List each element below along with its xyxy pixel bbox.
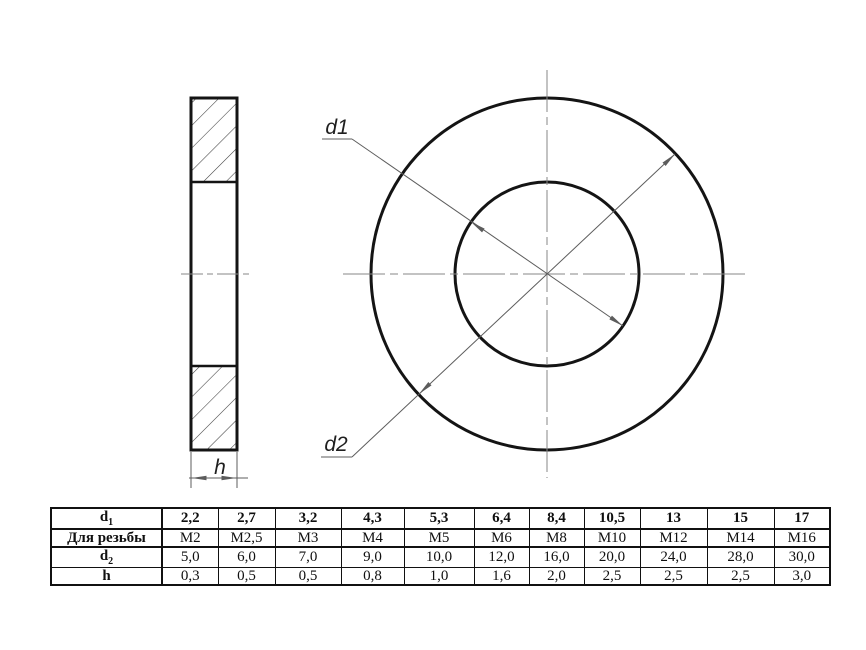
row-label: d2 <box>51 547 162 568</box>
table-cell: 16,0 <box>529 547 584 568</box>
table-cell: М14 <box>707 529 774 547</box>
table-cell: 6,0 <box>218 547 275 568</box>
table-row: h0,30,50,50,81,01,62,02,52,52,53,0 <box>51 568 830 585</box>
dimension-line-d2 <box>352 154 675 457</box>
table-cell: 0,8 <box>341 568 404 585</box>
table-cell: 1,6 <box>474 568 529 585</box>
table-cell: 0,3 <box>162 568 218 585</box>
table-cell: 9,0 <box>341 547 404 568</box>
table-cell: 2,5 <box>640 568 707 585</box>
table-cell: 20,0 <box>584 547 640 568</box>
table-cell: 3,2 <box>275 508 341 529</box>
label-d2: d2 <box>324 433 348 456</box>
dimension-d1: d1 <box>322 116 624 328</box>
label-d1: d1 <box>325 116 348 139</box>
table-cell: М3 <box>275 529 341 547</box>
table-cell: 1,0 <box>404 568 474 585</box>
arrowhead-left <box>192 476 207 481</box>
table-cell: 28,0 <box>707 547 774 568</box>
table-cell: 8,4 <box>529 508 584 529</box>
table-cell: 2,7 <box>218 508 275 529</box>
table-row: Для резьбыМ2М2,5М3М4М5М6М8М10М12М14М16 <box>51 529 830 547</box>
table-cell: М2 <box>162 529 218 547</box>
row-label: d1 <box>51 508 162 529</box>
table-cell: М16 <box>774 529 830 547</box>
table-cell: 3,0 <box>774 568 830 585</box>
table-cell: 7,0 <box>275 547 341 568</box>
washer-technical-drawing-page: h d1 d2 <box>0 0 866 650</box>
table-cell: 5,3 <box>404 508 474 529</box>
table-row: d25,06,07,09,010,012,016,020,024,028,030… <box>51 547 830 568</box>
table-cell: М8 <box>529 529 584 547</box>
row-label: Для резьбы <box>51 529 162 547</box>
table-cell: М10 <box>584 529 640 547</box>
table-row: d12,22,73,24,35,36,48,410,5131517 <box>51 508 830 529</box>
table-cell: М5 <box>404 529 474 547</box>
front-view: d1 d2 <box>321 70 750 478</box>
table-cell: 13 <box>640 508 707 529</box>
table-cell: 24,0 <box>640 547 707 568</box>
table-cell: 17 <box>774 508 830 529</box>
dimension-line-d1 <box>352 139 623 326</box>
table-cell: М6 <box>474 529 529 547</box>
table-cell: 10,5 <box>584 508 640 529</box>
dimension-h: h <box>189 452 248 488</box>
table-cell: 4,3 <box>341 508 404 529</box>
table-cell: 0,5 <box>218 568 275 585</box>
table-cell: 2,2 <box>162 508 218 529</box>
table-cell: 12,0 <box>474 547 529 568</box>
hatch-area-bottom <box>191 366 237 450</box>
row-label: h <box>51 568 162 585</box>
table-cell: М12 <box>640 529 707 547</box>
table-cell: 2,5 <box>584 568 640 585</box>
label-h: h <box>214 456 226 479</box>
table-cell: 10,0 <box>404 547 474 568</box>
table-cell: 0,5 <box>275 568 341 585</box>
table-cell: 2,5 <box>707 568 774 585</box>
table-cell: 5,0 <box>162 547 218 568</box>
table-cell: 30,0 <box>774 547 830 568</box>
table-cell: 6,4 <box>474 508 529 529</box>
table-cell: М2,5 <box>218 529 275 547</box>
dimensions-table: d12,22,73,24,35,36,48,410,5131517Для рез… <box>50 507 831 586</box>
hatch-area-top <box>191 98 237 182</box>
table-cell: 15 <box>707 508 774 529</box>
table-cell: М4 <box>341 529 404 547</box>
table-cell: 2,0 <box>529 568 584 585</box>
side-section-view: h <box>181 98 249 488</box>
